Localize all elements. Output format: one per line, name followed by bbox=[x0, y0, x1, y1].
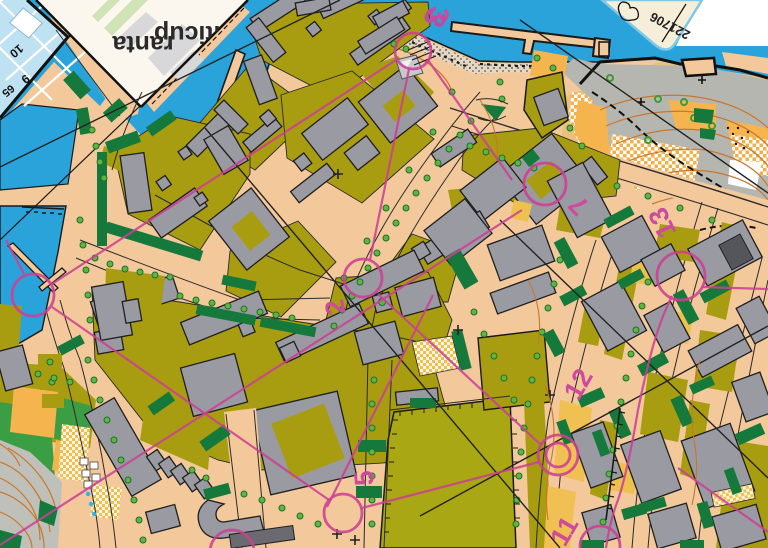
svg-text:5: 5 bbox=[349, 469, 380, 487]
svg-text:ranta: ranta bbox=[111, 30, 173, 58]
